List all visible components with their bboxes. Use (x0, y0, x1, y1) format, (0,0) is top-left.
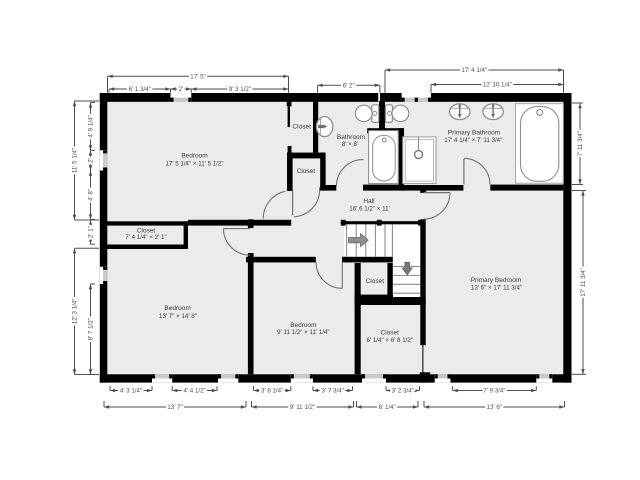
svg-text:Closet: Closet (381, 330, 400, 337)
svg-text:Primary Bedroom: Primary Bedroom (471, 277, 522, 284)
svg-text:13' 6" × 17' 11 3/4": 13' 6" × 17' 11 3/4" (471, 284, 522, 291)
svg-text:13' 7": 13' 7" (167, 404, 182, 411)
svg-text:7' 9 3/4": 7' 9 3/4" (483, 388, 505, 395)
svg-text:8' × 8': 8' × 8' (342, 141, 358, 148)
svg-text:Bedroom: Bedroom (164, 305, 190, 312)
svg-text:17' 5 1/4" × 11' 5 1/2": 17' 5 1/4" × 11' 5 1/2" (165, 160, 223, 167)
svg-text:9' 3 1/2": 9' 3 1/2" (229, 86, 251, 93)
svg-text:6' 1/4": 6' 1/4" (379, 404, 396, 411)
svg-text:7' 11 3/4": 7' 11 3/4" (577, 131, 584, 156)
svg-text:Hall: Hall (363, 198, 375, 205)
svg-text:Closet: Closet (292, 123, 311, 130)
svg-text:3' 7 3/4": 3' 7 3/4" (322, 388, 344, 395)
svg-text:17' 5": 17' 5" (190, 73, 205, 80)
svg-text:3' 2 3/4": 3' 2 3/4" (392, 388, 414, 395)
svg-text:17' 11 3/4": 17' 11 3/4" (580, 268, 587, 297)
svg-text:6' 1 3/4": 6' 1 3/4" (129, 86, 151, 93)
svg-text:13' 7" × 14' 8": 13' 7" × 14' 8" (159, 313, 197, 320)
svg-text:Bathroom: Bathroom (337, 134, 365, 141)
svg-text:9' 11 1/2": 9' 11 1/2" (290, 404, 315, 411)
svg-text:13' 6": 13' 6" (487, 404, 502, 411)
svg-text:4' 4 1/2": 4' 4 1/2" (183, 388, 205, 395)
svg-text:2': 2' (179, 86, 184, 93)
svg-text:12' 3 1/4": 12' 3 1/4" (72, 298, 79, 324)
svg-text:9' 11 1/2" × 11' 1/4": 9' 11 1/2" × 11' 1/4" (277, 329, 329, 336)
svg-text:Closet: Closet (297, 168, 316, 175)
svg-text:4' 3 1/4": 4' 3 1/4" (120, 388, 142, 395)
svg-text:2': 2' (88, 158, 95, 163)
svg-text:3' 8 1/4": 3' 8 1/4" (261, 388, 283, 395)
svg-text:16' 6 1/2" × 11': 16' 6 1/2" × 11' (349, 206, 389, 213)
svg-text:2' 1": 2' 1" (88, 226, 95, 238)
svg-text:6' 1/4" × 6' 8 1/2": 6' 1/4" × 6' 8 1/2" (367, 337, 414, 344)
svg-text:17' 4 1/4" × 7' 11 3/4": 17' 4 1/4" × 7' 11 3/4" (444, 137, 502, 144)
svg-text:12' 10 1/4": 12' 10 1/4" (483, 82, 512, 89)
svg-text:Bedroom: Bedroom (290, 322, 316, 329)
svg-text:8' 7 1/2": 8' 7 1/2" (88, 318, 95, 340)
svg-text:7' 4 1/4" × 2' 1": 7' 4 1/4" × 2' 1" (125, 234, 166, 241)
svg-text:Bedroom: Bedroom (181, 152, 207, 159)
svg-text:4' 9 1/4": 4' 9 1/4" (88, 115, 95, 137)
svg-text:17' 4 1/4": 17' 4 1/4" (461, 67, 487, 74)
svg-text:Closet: Closet (366, 278, 385, 285)
svg-text:4' 8": 4' 8" (88, 189, 95, 201)
svg-text:Primary Bathroom: Primary Bathroom (448, 130, 500, 137)
svg-text:6' 2": 6' 2" (343, 82, 355, 89)
svg-text:11' 5 1/4": 11' 5 1/4" (72, 148, 79, 173)
